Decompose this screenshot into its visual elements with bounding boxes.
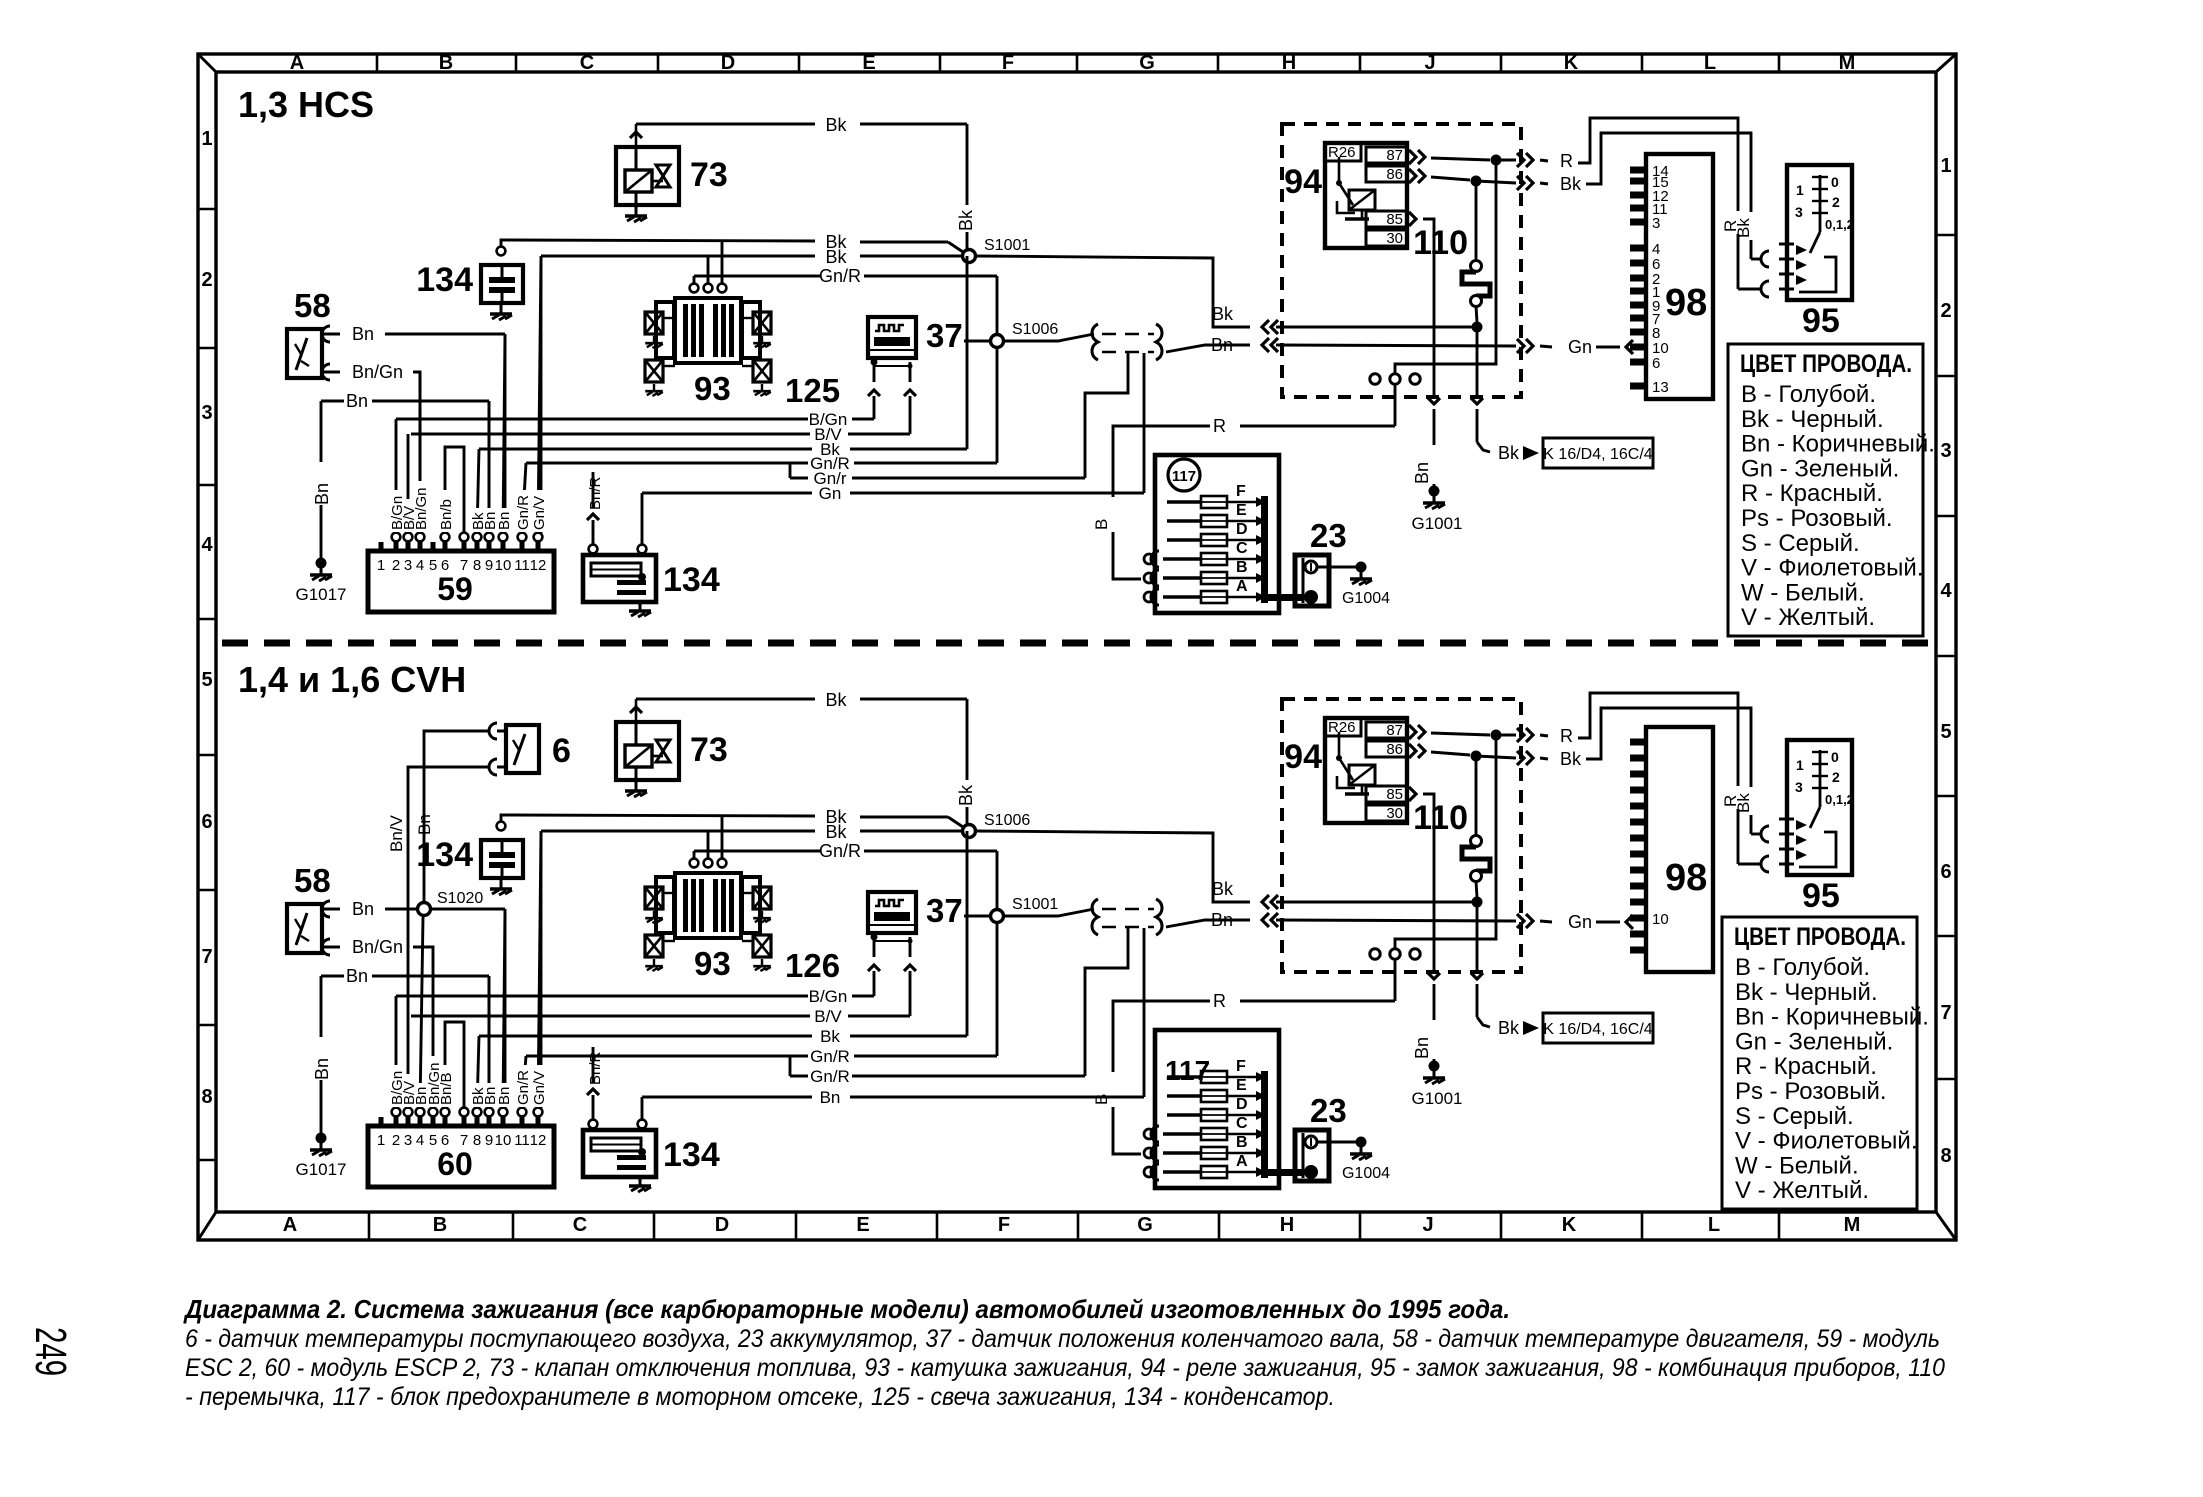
- svg-text:73: 73: [690, 731, 728, 769]
- svg-text:Bk: Bk: [1734, 793, 1753, 813]
- svg-text:Gn: Gn: [819, 484, 842, 503]
- svg-text:Bk: Bk: [1734, 218, 1753, 238]
- svg-text:Bn/Gn: Bn/Gn: [413, 487, 430, 530]
- svg-text:Bk: Bk: [1212, 304, 1234, 324]
- svg-text:G1001: G1001: [1411, 514, 1462, 533]
- svg-text:1: 1: [1796, 757, 1804, 773]
- svg-text:E: E: [856, 1214, 869, 1236]
- svg-text:Gn/R: Gn/R: [515, 1070, 532, 1105]
- svg-text:0: 0: [1831, 174, 1839, 190]
- svg-text:30: 30: [1386, 230, 1403, 247]
- svg-text:1: 1: [377, 1132, 385, 1149]
- svg-text:B: B: [1092, 519, 1111, 530]
- svg-text:R - Красный.: R - Красный.: [1741, 480, 1883, 507]
- svg-text:12: 12: [530, 557, 547, 574]
- svg-text:R26: R26: [1328, 144, 1356, 161]
- svg-text:58: 58: [294, 287, 331, 324]
- svg-text:73: 73: [690, 156, 728, 194]
- svg-text:R26: R26: [1328, 719, 1356, 736]
- svg-text:K 16/D4, 16C/4: K 16/D4, 16C/4: [1543, 446, 1653, 463]
- svg-text:B/Gn: B/Gn: [809, 987, 848, 1006]
- svg-text:A: A: [1236, 578, 1248, 595]
- svg-text:87: 87: [1386, 147, 1403, 164]
- svg-text:W - Белый.: W - Белый.: [1735, 1152, 1859, 1179]
- svg-text:125: 125: [785, 372, 840, 409]
- svg-text:Bn/R: Bn/R: [587, 1051, 604, 1085]
- svg-text:Gn: Gn: [1568, 337, 1592, 357]
- svg-text:Диаграмма 2. Система зажигани: Диаграмма 2. Система зажигания (все карб…: [183, 1294, 1510, 1324]
- svg-text:110: 110: [1413, 799, 1468, 837]
- svg-text:5: 5: [201, 669, 212, 691]
- svg-text:1,3 HCS: 1,3 HCS: [238, 84, 374, 125]
- svg-text:F: F: [998, 1214, 1010, 1236]
- svg-text:G1017: G1017: [295, 1160, 346, 1179]
- svg-text:134: 134: [416, 836, 473, 874]
- svg-text:0,1,2: 0,1,2: [1825, 792, 1854, 807]
- svg-text:E: E: [862, 52, 875, 74]
- svg-text:S1001: S1001: [1012, 896, 1058, 913]
- svg-text:H: H: [1280, 1214, 1294, 1236]
- svg-text:12: 12: [530, 1132, 547, 1149]
- svg-text:Bn: Bn: [346, 966, 368, 986]
- svg-text:L: L: [1704, 52, 1716, 74]
- svg-text:Bn: Bn: [352, 899, 374, 919]
- svg-text:J: J: [1424, 52, 1435, 74]
- svg-text:7: 7: [201, 946, 212, 968]
- svg-text:1,4 и 1,6 CVH: 1,4 и 1,6 CVH: [238, 659, 466, 700]
- svg-text:2: 2: [392, 1132, 400, 1149]
- svg-text:R: R: [1560, 151, 1573, 171]
- svg-text:3: 3: [1795, 779, 1803, 795]
- svg-text:R - Красный.: R - Красный.: [1735, 1053, 1877, 1080]
- svg-text:Ps - Розовый.: Ps - Розовый.: [1741, 505, 1893, 532]
- svg-text:R: R: [1213, 416, 1226, 436]
- svg-text:B: B: [1092, 1094, 1111, 1105]
- svg-text:Gn/R: Gn/R: [810, 1047, 850, 1066]
- svg-text:Bn/b: Bn/b: [438, 499, 455, 530]
- svg-text:Gn - Зеленый.: Gn - Зеленый.: [1735, 1028, 1893, 1055]
- svg-text:10: 10: [495, 557, 512, 574]
- svg-text:60: 60: [437, 1146, 473, 1182]
- svg-text:2: 2: [392, 557, 400, 574]
- svg-text:Gn/R: Gn/R: [515, 495, 532, 530]
- svg-text:4: 4: [1940, 580, 1952, 602]
- svg-text:37: 37: [926, 892, 963, 929]
- svg-text:G1004: G1004: [1342, 590, 1390, 607]
- svg-text:11: 11: [514, 1132, 530, 1149]
- svg-text:R: R: [1560, 726, 1573, 746]
- svg-text:V - Желтый.: V - Желтый.: [1735, 1177, 1869, 1204]
- svg-text:A: A: [1236, 1153, 1248, 1170]
- svg-text:3: 3: [201, 402, 212, 424]
- svg-text:23: 23: [1310, 517, 1347, 554]
- svg-text:Gn/V: Gn/V: [531, 496, 548, 530]
- svg-text:Gn - Зеленый.: Gn - Зеленый.: [1741, 455, 1899, 482]
- svg-text:- перемычка, 117 - блок предох: - перемычка, 117 - блок предохранителе в…: [185, 1383, 1335, 1411]
- svg-text:V - Фиолетовый.: V - Фиолетовый.: [1741, 555, 1924, 582]
- svg-text:95: 95: [1802, 302, 1840, 340]
- svg-text:E: E: [1236, 1077, 1247, 1094]
- svg-text:85: 85: [1386, 786, 1403, 803]
- svg-text:Bk: Bk: [825, 115, 847, 135]
- svg-text:B: B: [1236, 1134, 1248, 1151]
- svg-text:11: 11: [514, 557, 530, 574]
- svg-text:10: 10: [1652, 911, 1669, 928]
- svg-text:23: 23: [1310, 1092, 1347, 1129]
- svg-text:G1017: G1017: [295, 585, 346, 604]
- svg-text:Bn: Bn: [352, 324, 374, 344]
- svg-text:93: 93: [694, 945, 731, 982]
- svg-text:Bn/Gn: Bn/Gn: [352, 362, 403, 382]
- svg-text:134: 134: [416, 261, 473, 299]
- svg-text:C: C: [1236, 540, 1248, 557]
- svg-text:9: 9: [485, 1132, 493, 1149]
- svg-text:134: 134: [663, 561, 720, 599]
- svg-text:D: D: [721, 52, 735, 74]
- svg-text:7: 7: [1940, 1002, 1951, 1024]
- svg-text:ЦВЕТ ПРОВОДА.: ЦВЕТ ПРОВОДА.: [1734, 923, 1906, 951]
- svg-text:B: B: [439, 52, 453, 74]
- svg-text:3: 3: [404, 1132, 412, 1149]
- svg-text:4: 4: [416, 1132, 424, 1149]
- svg-text:B - Голубой.: B - Голубой.: [1741, 381, 1876, 408]
- svg-text:Bk: Bk: [825, 247, 847, 267]
- svg-text:H: H: [1282, 52, 1296, 74]
- svg-text:117: 117: [1172, 468, 1196, 485]
- svg-text:4: 4: [416, 557, 424, 574]
- svg-text:Bk: Bk: [956, 209, 976, 231]
- svg-text:F: F: [1236, 483, 1246, 500]
- svg-text:Bn - Коричневый.: Bn - Коричневый.: [1735, 1004, 1929, 1031]
- svg-text:S - Серый.: S - Серый.: [1735, 1103, 1854, 1130]
- svg-text:3: 3: [1940, 440, 1951, 462]
- svg-text:Bk - Черный.: Bk - Черный.: [1735, 979, 1878, 1006]
- svg-text:85: 85: [1386, 211, 1403, 228]
- svg-text:8: 8: [1940, 1145, 1951, 1167]
- svg-text:C: C: [573, 1214, 587, 1236]
- svg-text:1: 1: [377, 557, 385, 574]
- svg-text:Bn/Gn: Bn/Gn: [352, 937, 403, 957]
- svg-text:Bk: Bk: [1498, 443, 1520, 463]
- svg-text:S - Серый.: S - Серый.: [1741, 530, 1860, 557]
- svg-text:B - Голубой.: B - Голубой.: [1735, 954, 1870, 981]
- svg-text:G: G: [1137, 1214, 1153, 1236]
- svg-text:Bk: Bk: [825, 822, 847, 842]
- svg-text:6: 6: [1652, 355, 1660, 372]
- svg-text:9: 9: [485, 557, 493, 574]
- svg-text:86: 86: [1386, 741, 1403, 758]
- svg-text:6: 6: [1940, 861, 1951, 883]
- svg-text:F: F: [1002, 52, 1014, 74]
- svg-text:Bk: Bk: [1560, 749, 1582, 769]
- svg-text:249: 249: [27, 1327, 76, 1376]
- svg-text:D: D: [715, 1214, 729, 1236]
- svg-text:ESC 2, 60 - модуль ESCP 2, 73: ESC 2, 60 - модуль ESCP 2, 73 - клапан о…: [185, 1354, 1945, 1382]
- svg-text:0: 0: [1831, 749, 1839, 765]
- svg-text:1: 1: [1940, 155, 1951, 177]
- svg-text:Bn: Bn: [312, 483, 332, 505]
- svg-text:M: M: [1839, 52, 1856, 74]
- svg-text:94: 94: [1284, 738, 1322, 776]
- svg-text:Bn/R: Bn/R: [587, 476, 604, 510]
- svg-text:G: G: [1139, 52, 1155, 74]
- svg-text:6: 6: [552, 732, 571, 770]
- svg-text:Gn/R: Gn/R: [819, 841, 861, 861]
- svg-text:G1001: G1001: [1411, 1089, 1462, 1108]
- svg-text:S1001: S1001: [984, 237, 1030, 254]
- svg-text:3: 3: [1652, 215, 1660, 232]
- svg-text:98: 98: [1665, 282, 1707, 324]
- svg-text:R: R: [1213, 991, 1226, 1011]
- svg-text:134: 134: [663, 1136, 720, 1174]
- svg-text:Gn/R: Gn/R: [810, 1067, 850, 1086]
- svg-text:98: 98: [1665, 857, 1707, 899]
- svg-text:V - Фиолетовый.: V - Фиолетовый.: [1735, 1128, 1918, 1155]
- svg-text:110: 110: [1413, 224, 1468, 262]
- svg-text:93: 93: [694, 370, 731, 407]
- svg-text:3: 3: [1795, 204, 1803, 220]
- svg-text:13: 13: [1652, 379, 1669, 396]
- svg-text:V - Желтый.: V - Желтый.: [1741, 604, 1875, 631]
- svg-text:G1004: G1004: [1342, 1165, 1390, 1182]
- svg-text:C: C: [580, 52, 594, 74]
- svg-text:A: A: [290, 52, 304, 74]
- svg-text:2: 2: [1940, 300, 1951, 322]
- svg-text:94: 94: [1284, 163, 1322, 201]
- svg-text:5: 5: [1940, 721, 1951, 743]
- svg-text:Gn: Gn: [1568, 912, 1592, 932]
- svg-text:Bn: Bn: [1211, 335, 1233, 355]
- svg-text:2: 2: [1832, 769, 1840, 785]
- svg-text:S1006: S1006: [984, 812, 1030, 829]
- svg-text:Bn: Bn: [1211, 910, 1233, 930]
- svg-text:Gn/V: Gn/V: [531, 1071, 548, 1105]
- svg-text:C: C: [1236, 1115, 1248, 1132]
- svg-text:30: 30: [1386, 805, 1403, 822]
- svg-text:S1020: S1020: [437, 890, 483, 907]
- svg-text:J: J: [1422, 1214, 1433, 1236]
- svg-text:8: 8: [473, 1132, 481, 1149]
- svg-text:Bn: Bn: [496, 1087, 513, 1105]
- svg-text:2: 2: [1832, 194, 1840, 210]
- svg-text:B/V: B/V: [814, 1007, 842, 1026]
- svg-text:M: M: [1844, 1214, 1861, 1236]
- svg-text:6 - датчик температуры поступа: 6 - датчик температуры поступающего возд…: [185, 1325, 1940, 1353]
- svg-text:Ps - Розовый.: Ps - Розовый.: [1735, 1078, 1887, 1105]
- svg-text:Bn: Bn: [415, 814, 434, 835]
- svg-text:Bn: Bn: [346, 391, 368, 411]
- svg-text:1: 1: [201, 128, 212, 150]
- svg-text:F: F: [1236, 1058, 1246, 1075]
- svg-text:Bn: Bn: [496, 512, 513, 530]
- svg-text:W - Белый.: W - Белый.: [1741, 579, 1865, 606]
- svg-text:1: 1: [1796, 182, 1804, 198]
- svg-text:6: 6: [201, 811, 212, 833]
- svg-text:K 16/D4, 16C/4: K 16/D4, 16C/4: [1543, 1021, 1653, 1038]
- svg-text:Bn: Bn: [1412, 462, 1432, 484]
- svg-text:Bk: Bk: [825, 690, 847, 710]
- svg-text:K: K: [1562, 1214, 1577, 1236]
- svg-text:8: 8: [473, 557, 481, 574]
- svg-text:Gn/R: Gn/R: [819, 266, 861, 286]
- svg-text:Bk: Bk: [1212, 879, 1234, 899]
- svg-text:95: 95: [1802, 877, 1840, 915]
- svg-text:Bk: Bk: [1498, 1018, 1520, 1038]
- svg-text:5: 5: [429, 1132, 437, 1149]
- svg-text:Bn: Bn: [1412, 1037, 1432, 1059]
- svg-text:Bn/V: Bn/V: [387, 814, 406, 852]
- svg-text:10: 10: [495, 1132, 512, 1149]
- svg-text:86: 86: [1386, 166, 1403, 183]
- svg-text:Bn: Bn: [312, 1058, 332, 1080]
- svg-text:5: 5: [429, 557, 437, 574]
- svg-text:Bk - Черный.: Bk - Черный.: [1741, 406, 1884, 433]
- svg-text:B: B: [1236, 559, 1248, 576]
- svg-text:D: D: [1236, 521, 1248, 538]
- svg-text:Bn/B: Bn/B: [438, 1072, 455, 1105]
- svg-text:58: 58: [294, 862, 331, 899]
- svg-text:S1006: S1006: [1012, 321, 1058, 338]
- svg-text:3: 3: [404, 557, 412, 574]
- svg-text:E: E: [1236, 502, 1247, 519]
- svg-text:8: 8: [201, 1086, 212, 1108]
- svg-text:Bk: Bk: [956, 784, 976, 806]
- svg-text:126: 126: [785, 947, 840, 984]
- svg-text:4: 4: [201, 534, 213, 556]
- svg-text:Bk: Bk: [1560, 174, 1582, 194]
- svg-text:D: D: [1236, 1096, 1248, 1113]
- svg-text:L: L: [1708, 1214, 1720, 1236]
- svg-text:K: K: [1564, 52, 1579, 74]
- svg-text:B: B: [433, 1214, 447, 1236]
- svg-text:ЦВЕТ ПРОВОДА.: ЦВЕТ ПРОВОДА.: [1740, 350, 1912, 378]
- svg-text:0,1,2: 0,1,2: [1825, 217, 1854, 232]
- svg-text:A: A: [283, 1214, 297, 1236]
- svg-text:Bn - Коричневый.: Bn - Коричневый.: [1741, 431, 1935, 458]
- svg-text:2: 2: [201, 269, 212, 291]
- svg-text:59: 59: [437, 571, 473, 607]
- svg-text:87: 87: [1386, 722, 1403, 739]
- svg-text:Bk: Bk: [820, 1027, 840, 1046]
- svg-text:37: 37: [926, 317, 963, 354]
- svg-text:Bn: Bn: [820, 1088, 841, 1107]
